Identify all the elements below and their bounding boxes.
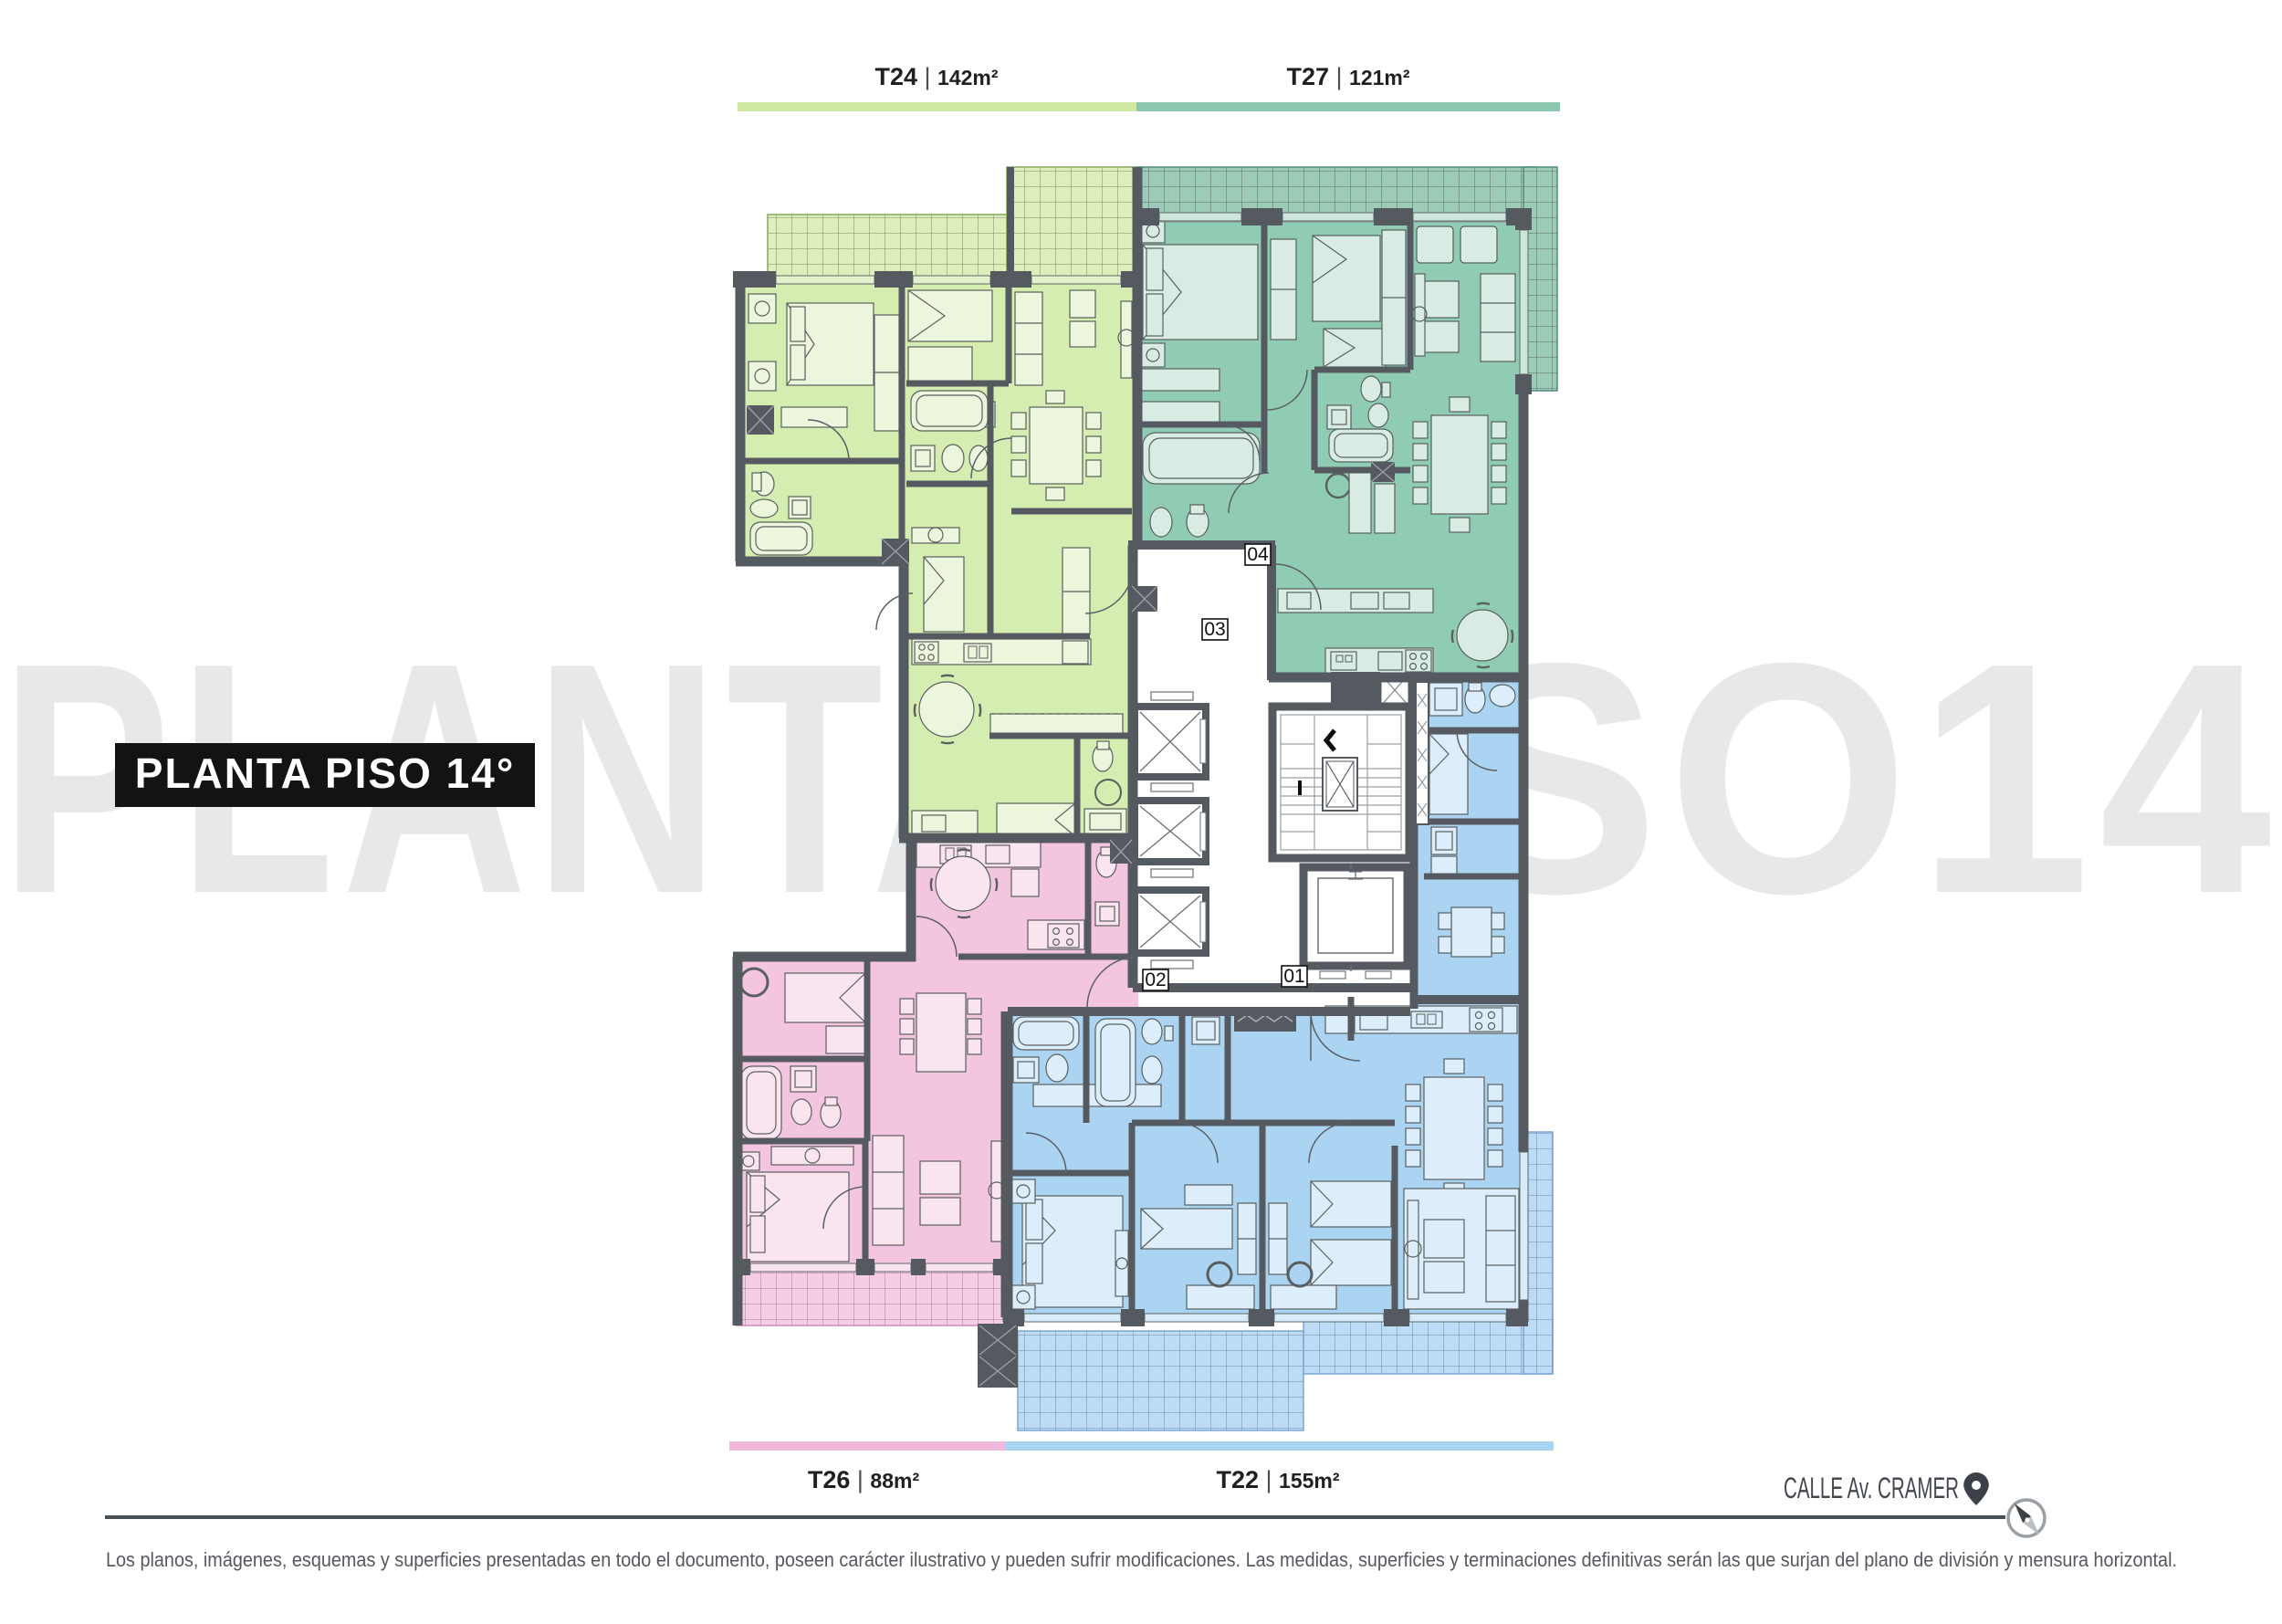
svg-text:T24 | 142m²: T24 | 142m²	[874, 63, 998, 90]
svg-text:03: 03	[1204, 619, 1225, 640]
svg-text:T27 | 121m²: T27 | 121m²	[1286, 63, 1409, 90]
svg-text:T22 | 155m²: T22 | 155m²	[1216, 1466, 1339, 1493]
svg-text:04: 04	[1247, 544, 1269, 565]
svg-text:CALLE Av. CRAMER: CALLE Av. CRAMER	[1784, 1472, 1959, 1504]
svg-text:02: 02	[1145, 969, 1166, 990]
svg-text:T26 | 88m²: T26 | 88m²	[808, 1466, 920, 1493]
svg-text:PLANTA PISO 14°: PLANTA PISO 14°	[135, 749, 515, 797]
svg-text:Los planos, imágenes, esquemas: Los planos, imágenes, esquemas y superfi…	[106, 1548, 2177, 1571]
svg-text:01: 01	[1283, 966, 1304, 987]
